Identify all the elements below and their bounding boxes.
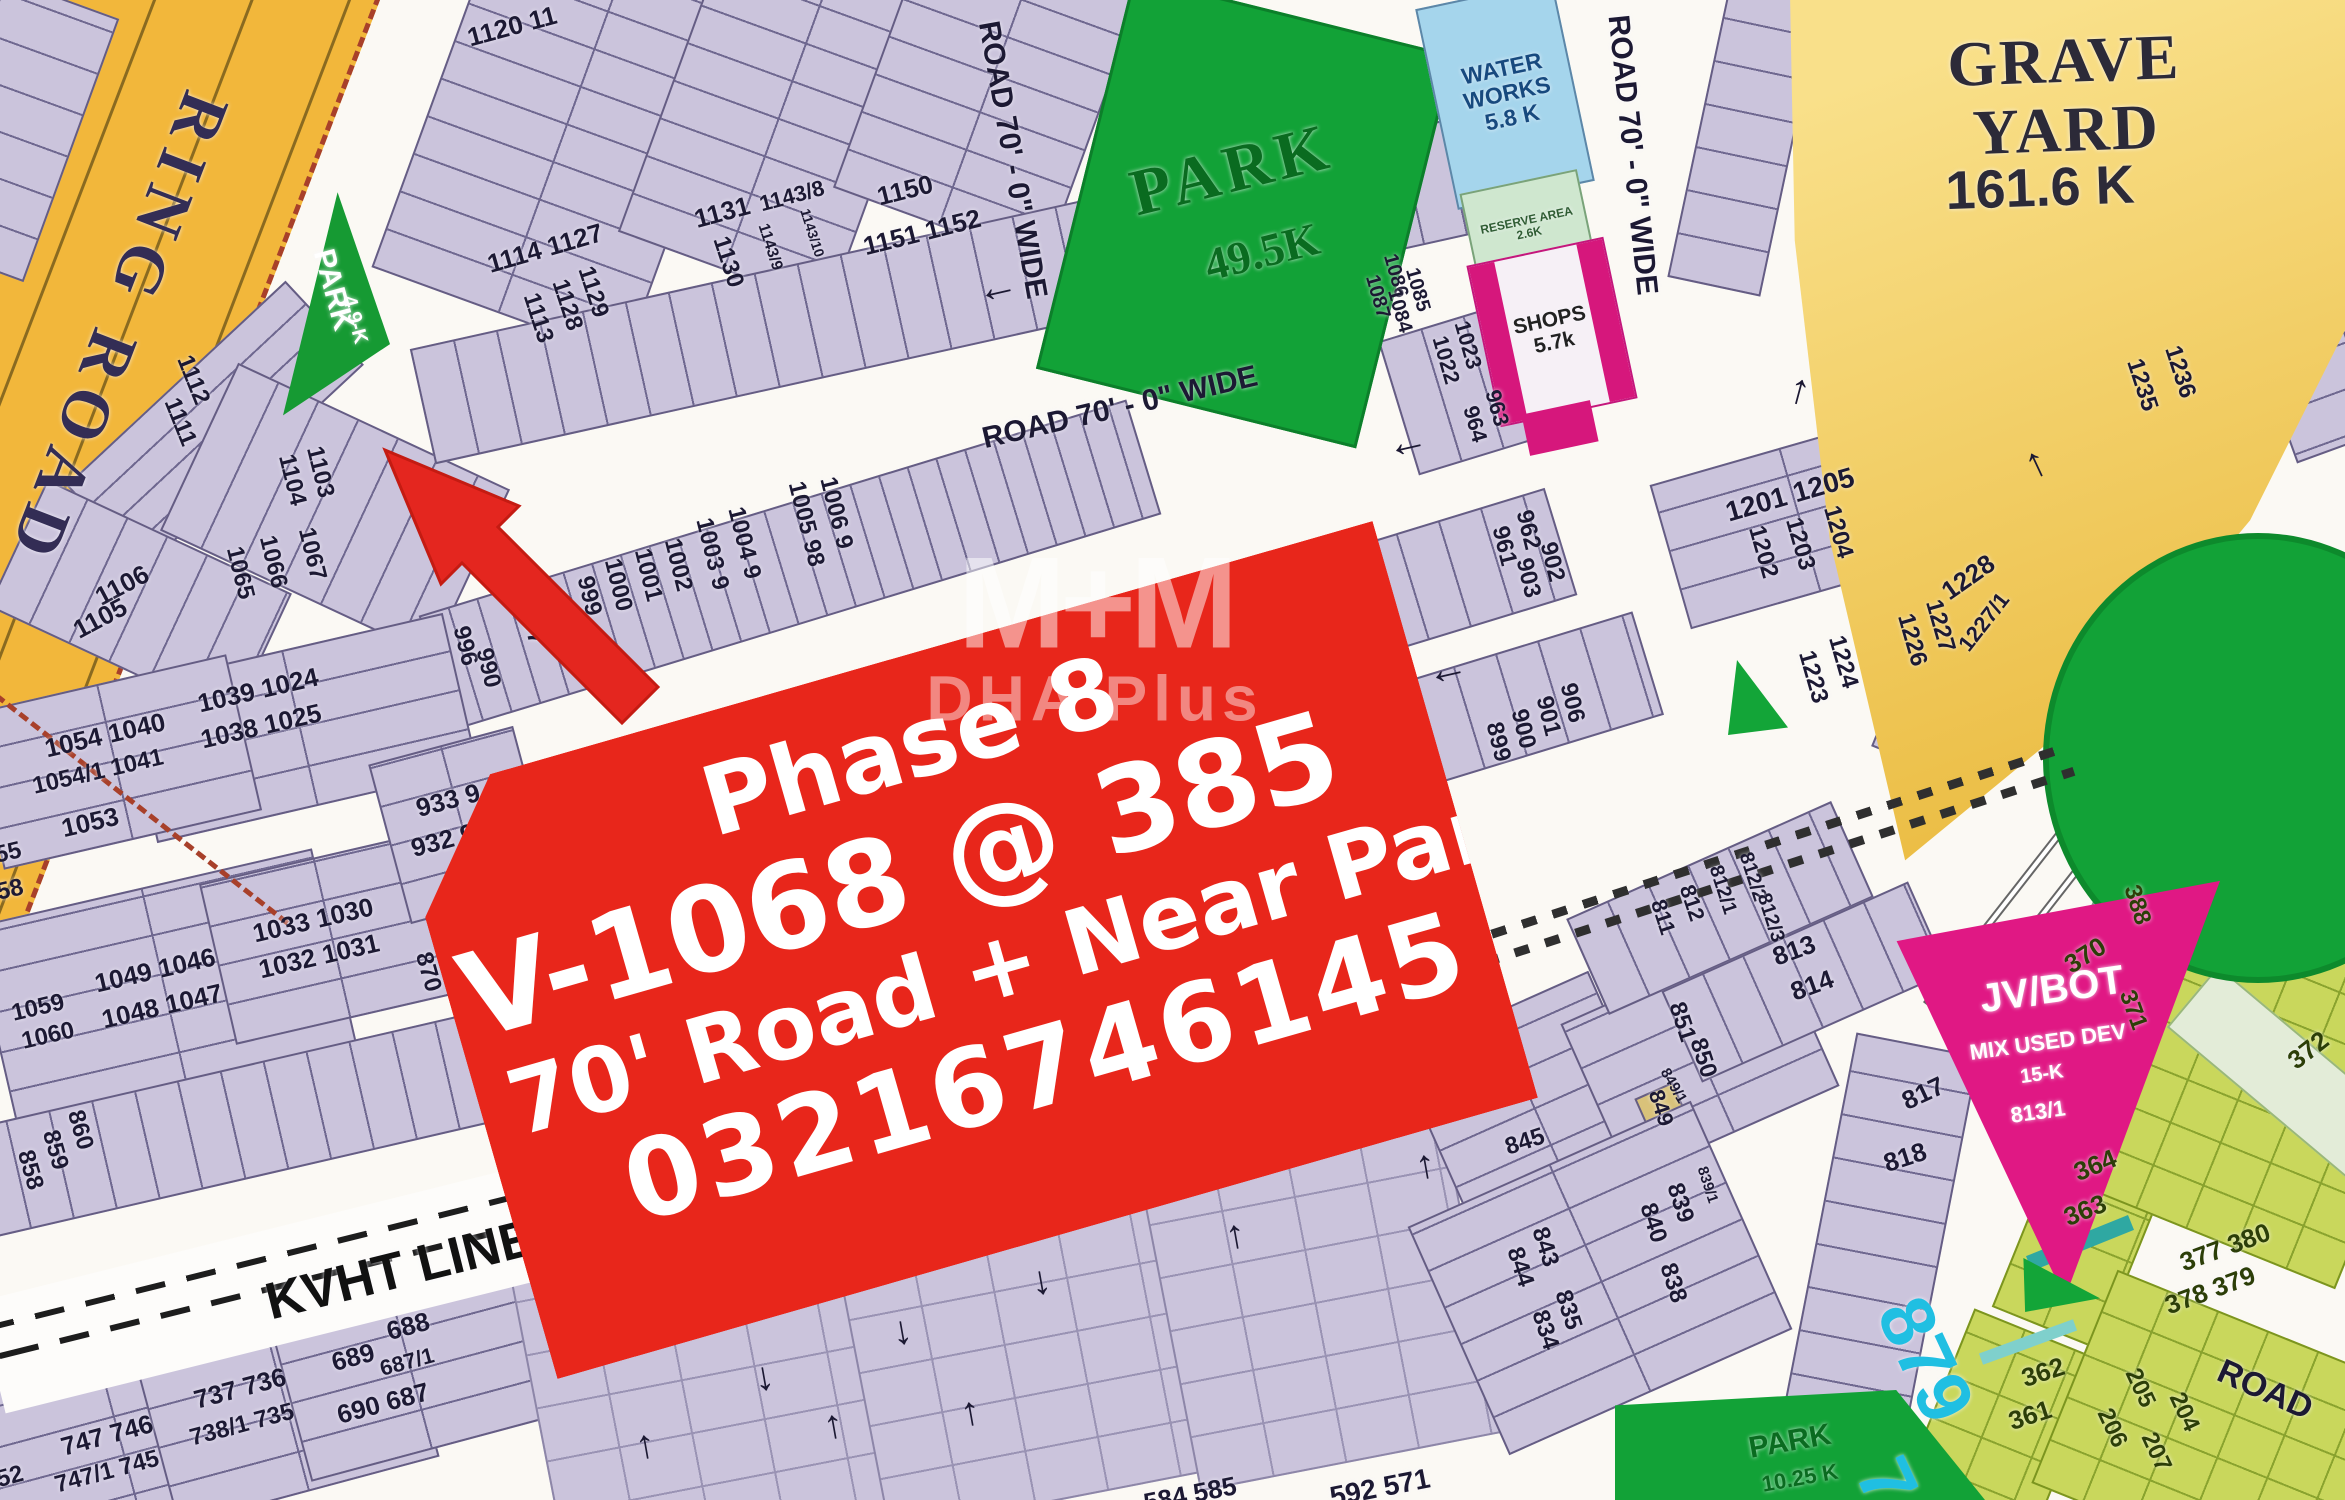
road-label-vertical-right: ROAD 70' - 0" WIDE xyxy=(1601,13,1663,296)
direction-arrow: → xyxy=(883,1309,932,1356)
direction-arrow: → xyxy=(803,1405,852,1452)
map-canvas: RING ROADPARK4.9-KPARK49.5KWATER WORKS 5… xyxy=(0,0,2345,1500)
direction-arrow: → xyxy=(745,1355,794,1402)
grave-yard-size: 161.6 K xyxy=(1944,156,2135,221)
direction-arrow: → xyxy=(1205,1215,1254,1262)
direction-arrow: → xyxy=(940,1392,989,1439)
direction-arrow: → xyxy=(1022,1259,1071,1306)
small-green-triangle xyxy=(1728,660,1788,735)
grave-yard-label: GRAVE YARD xyxy=(1923,21,2208,169)
direction-arrow: → xyxy=(1395,1145,1444,1192)
plot-label: 592 571 xyxy=(1327,1464,1432,1500)
direction-arrow: → xyxy=(615,1425,664,1472)
